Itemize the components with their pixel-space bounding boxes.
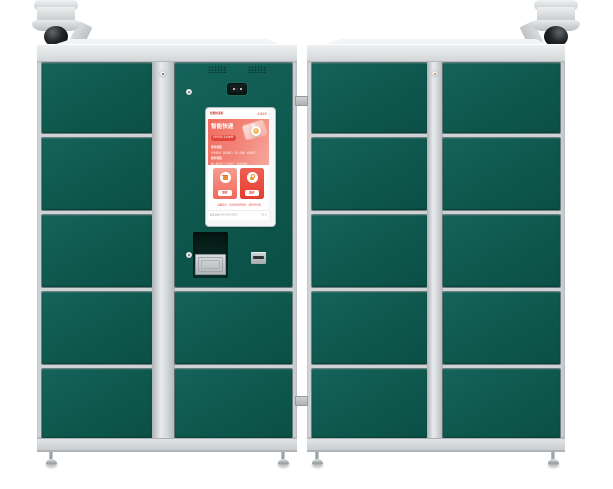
screen-banner: 智能快递 扫码存取 安全便捷 寄件流程 扫码登录 · 选择格口 · 存入包裹 ·…: [208, 119, 269, 165]
parcel-badge-icon: [251, 126, 261, 136]
leveling-foot: [311, 452, 323, 468]
locker-door: [312, 292, 427, 364]
kiosk-screen: 智能快递柜 欢迎使用 智能快递 扫码存取 安全便捷 寄件流程 扫码登录 · 选择…: [206, 108, 275, 226]
leveling-foot: [45, 452, 57, 468]
door-column: [312, 63, 427, 438]
screen-main: 寄件 取件: [208, 165, 269, 211]
footer-left-text: 服务热线 400-000-0000: [210, 214, 237, 216]
hinge-strip: [152, 62, 175, 438]
pickup-parcel-button: 取件: [240, 168, 264, 199]
keyhole-icon: [432, 71, 438, 77]
locker-door: [312, 63, 427, 133]
locker-door: [42, 369, 152, 438]
lens-icon: [236, 88, 238, 90]
card-reader-ring: [201, 260, 220, 269]
qr-scanner-bay: [193, 232, 228, 278]
send-parcel-button: 寄件: [213, 168, 237, 199]
screen-header-right-text: 欢迎使用: [257, 113, 267, 115]
control-panel: 智能快递柜 欢迎使用 智能快递 扫码存取 安全便捷 寄件流程 扫码登录 · 选择…: [175, 63, 292, 287]
speaker-grille: [248, 66, 267, 73]
pickup-label: 取件: [249, 192, 254, 195]
cabinet-top-frame: [307, 44, 565, 62]
lens-light-icon: [240, 88, 242, 90]
locker-door: [312, 369, 427, 438]
smart-locker-photo: 智能快递柜 欢迎使用 智能快递 扫码存取 安全便捷 寄件流程 扫码登录 · 选择…: [0, 0, 613, 489]
lock-button: [186, 89, 192, 95]
locker-door: [443, 369, 560, 438]
panel-camera-module: [227, 83, 247, 95]
door-column: [42, 63, 152, 438]
send-icon-circle: [220, 172, 231, 183]
screen-note-text: 温馨提示：请凭取件码取件，超时将计费: [217, 204, 260, 206]
pickup-label-pill: 取件: [245, 190, 259, 196]
footer-right-text: V1.0: [262, 214, 267, 216]
cabinet-extension: [307, 44, 565, 452]
camera-lens-bar: [231, 87, 243, 92]
panel-column: 智能快递柜 欢迎使用 智能快递 扫码存取 安全便捷 寄件流程 扫码登录 · 选择…: [175, 63, 292, 438]
speaker-grille: [208, 66, 227, 73]
lock-button: [186, 252, 192, 258]
screen-header: 智能快递柜 欢迎使用: [208, 110, 269, 119]
cabinet-body: 智能快递柜 欢迎使用 智能快递 扫码存取 安全便捷 寄件流程 扫码登录 · 选择…: [37, 62, 297, 438]
locker-door: [443, 63, 560, 133]
door-column: [443, 63, 560, 438]
lens-light-icon: [233, 88, 235, 90]
locker-door: [175, 369, 292, 438]
banner-section-heading: 取件流程: [211, 157, 222, 160]
cabinet-joint-hinge: [295, 396, 308, 406]
lock-icon: [250, 177, 254, 180]
send-label-pill: 寄件: [218, 190, 232, 196]
locker-door: [42, 292, 152, 364]
receipt-slot: [251, 252, 266, 264]
locker-door: [443, 138, 560, 210]
cabinet-body: [307, 62, 565, 438]
leveling-foot: [277, 452, 289, 468]
locker-door: [175, 292, 292, 364]
banner-section-items: 扫码登录 · 选择格口 · 存入包裹 · 关闭柜门: [211, 152, 256, 154]
hinge-strip: [427, 62, 443, 438]
kiosk-ui: 智能快递柜 欢迎使用 智能快递 扫码存取 安全便捷 寄件流程 扫码登录 · 选择…: [208, 110, 269, 220]
locker-door: [42, 63, 152, 133]
card-reader: [195, 254, 226, 275]
locker-door: [443, 292, 560, 364]
pickup-icon-circle: [247, 172, 258, 183]
locker-door: [42, 215, 152, 287]
locker-door: [443, 215, 560, 287]
keyhole-icon: [160, 71, 166, 77]
banner-pill: 扫码存取 安全便捷: [211, 135, 236, 141]
leveling-foot: [547, 452, 559, 468]
banner-pill-text: 扫码存取 安全便捷: [213, 136, 233, 138]
send-label: 寄件: [222, 192, 227, 195]
cabinet-base: [37, 438, 297, 452]
banner-title: 智能快递: [211, 124, 233, 129]
locker-door: [312, 215, 427, 287]
screen-footer: 服务热线 400-000-0000 V1.0: [208, 210, 269, 220]
cabinet-main: 智能快递柜 欢迎使用 智能快递 扫码存取 安全便捷 寄件流程 扫码登录 · 选择…: [37, 44, 297, 452]
package-icon: [223, 176, 228, 180]
screen-logo-text: 智能快递柜: [210, 112, 224, 115]
cabinet-base: [307, 438, 565, 452]
locker-door: [42, 138, 152, 210]
banner-section-heading: 寄件流程: [211, 146, 222, 149]
cabinet-top-frame: [37, 44, 297, 62]
locker-door: [312, 138, 427, 210]
cabinet-joint-hinge: [295, 96, 308, 106]
